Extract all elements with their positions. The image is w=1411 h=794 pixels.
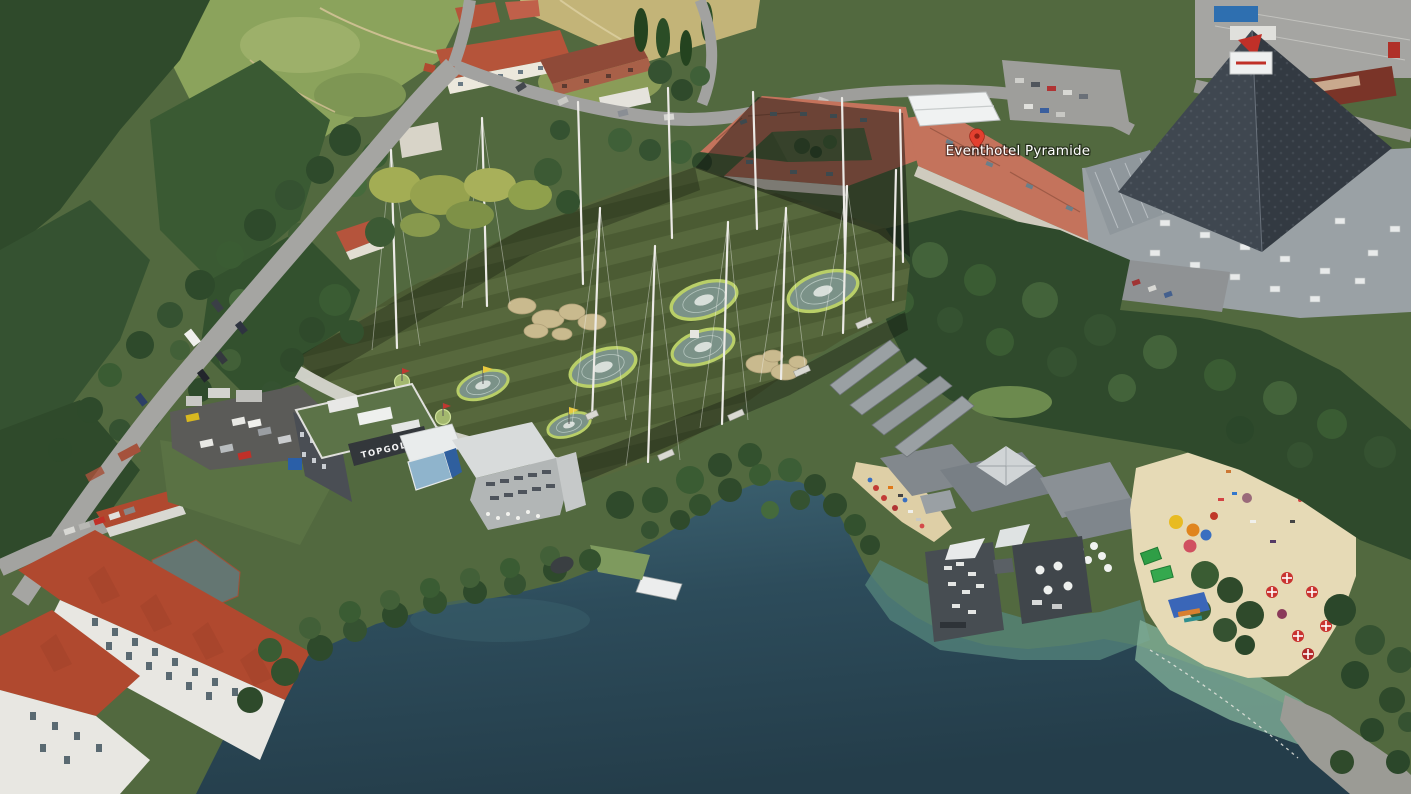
marquee-tent bbox=[908, 92, 1000, 126]
aerial-map-viewport[interactable]: TOPGOLF Eventhotel Pyramide bbox=[0, 0, 1411, 794]
pier-west bbox=[925, 538, 1004, 642]
blue-dumpster bbox=[288, 458, 302, 470]
place-label[interactable]: Eventhotel Pyramide bbox=[946, 143, 1091, 159]
aerial-scene: TOPGOLF Eventhotel Pyramide bbox=[0, 0, 1411, 794]
blue-container bbox=[1214, 6, 1258, 22]
